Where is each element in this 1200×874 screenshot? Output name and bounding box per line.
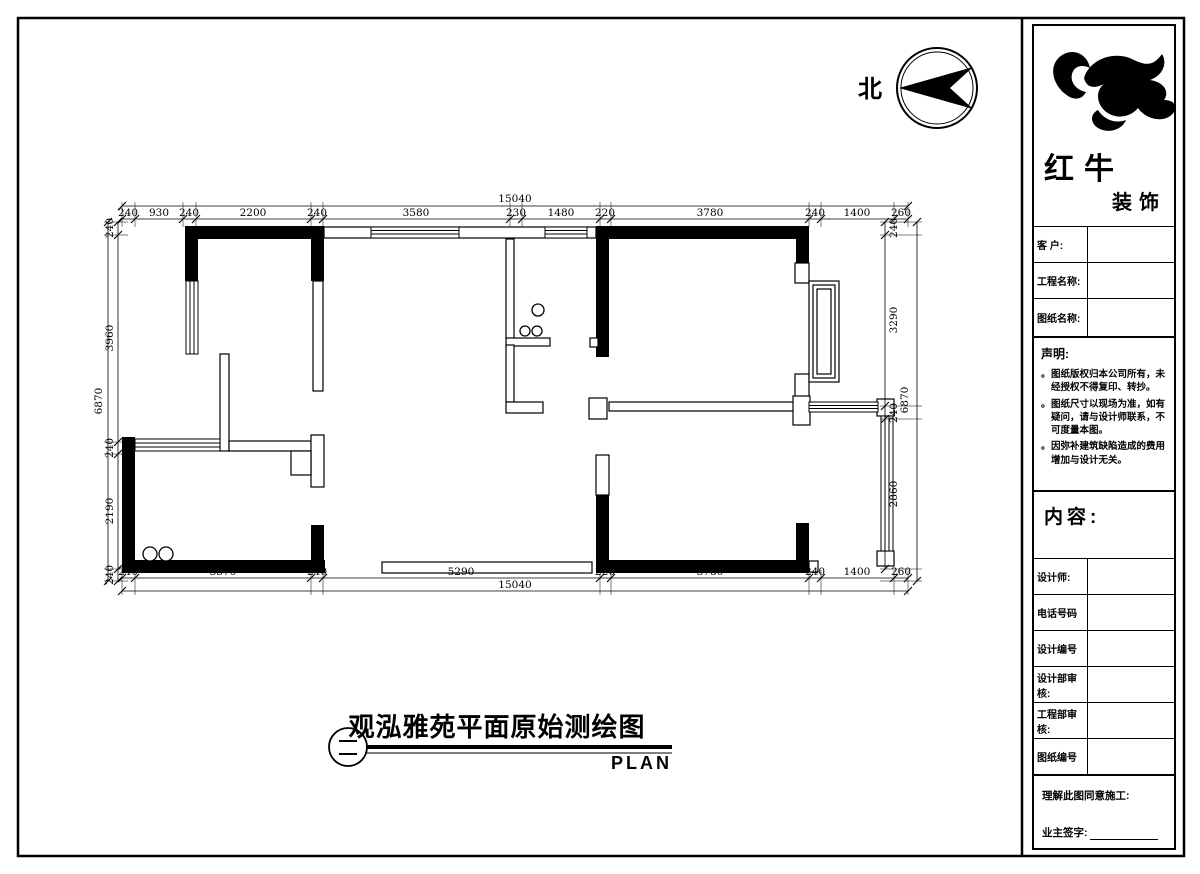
drawing-title: 观泓雅苑平面原始测绘图 PLAN <box>329 712 672 773</box>
dim-label: 240 <box>888 403 900 423</box>
dim-label: 3960 <box>104 325 116 352</box>
field-phone: 电话号码 <box>1034 594 1174 630</box>
sheet-no-label: 图纸编号 <box>1034 739 1088 774</box>
dim-label: 240 <box>104 438 116 458</box>
field-designer: 设计师: <box>1034 558 1174 594</box>
field-design-no: 设计编号 <box>1034 630 1174 666</box>
sheet-no-value[interactable] <box>1088 739 1174 774</box>
dimension-labels: 15040 240 930 240 2200 240 3580 230 1480… <box>93 193 911 591</box>
dim-label: 2200 <box>240 207 267 219</box>
bay-window <box>809 281 839 382</box>
sheet-name-label: 图纸名称: <box>1034 299 1088 336</box>
drawing-title-text: 观泓雅苑平面原始测绘图 <box>348 712 645 742</box>
sheet-name-value[interactable] <box>1088 299 1174 336</box>
dim-label: 5290 <box>448 566 475 578</box>
agreement-label: 理解此图同意施工: <box>1042 788 1168 803</box>
statement-item: 。 图纸版权归本公司所有，未经授权不得复印、转抄。 <box>1041 368 1169 395</box>
dim-label: 240 <box>307 207 327 219</box>
dim-label: 260 <box>891 566 911 578</box>
owner-signature-line[interactable] <box>1090 827 1158 840</box>
design-no-label: 设计编号 <box>1034 631 1088 666</box>
dim-label: 3580 <box>403 207 430 219</box>
bullet-icon: 。 <box>1041 398 1051 438</box>
content-section: 内容: <box>1034 490 1174 558</box>
dim-label: 220 <box>595 207 615 219</box>
statement-text: 因弥补建筑缺陷造成的费用增加与设计无关。 <box>1051 440 1169 467</box>
field-design-review: 设计部审核: <box>1034 666 1174 702</box>
content-label: 内容: <box>1044 507 1100 528</box>
phone-value[interactable] <box>1088 595 1174 630</box>
field-project: 工程名称: <box>1034 262 1174 298</box>
statement-text: 图纸版权归本公司所有，未经授权不得复印、转抄。 <box>1051 368 1169 395</box>
designer-value[interactable] <box>1088 559 1174 594</box>
dim-label: 1480 <box>548 207 575 219</box>
floor-plan-svg: 北 <box>0 0 1200 874</box>
field-sheet-no: 图纸编号 <box>1034 738 1174 774</box>
field-customer: 客 户: <box>1034 226 1174 262</box>
dim-total-right: 6870 <box>899 387 911 414</box>
bullet-icon: 。 <box>1041 368 1051 395</box>
company-subname: 装饰 <box>1112 186 1166 215</box>
dim-label: 240 <box>118 207 138 219</box>
statement-item: 。 图纸尺寸以现场为准，如有疑问，请与设计师联系，不可度量本图。 <box>1041 398 1169 438</box>
dim-label: 220 <box>595 566 615 578</box>
dim-label: 240 <box>104 565 116 585</box>
dim-label: 1400 <box>844 566 871 578</box>
drawing-sheet: 北 <box>0 0 1200 874</box>
north-label: 北 <box>858 76 882 103</box>
dim-label: 2860 <box>888 481 900 508</box>
red-bull-logo-icon <box>1053 52 1175 131</box>
title-block: 红牛 装饰 客 户: 工程名称: 图纸名称: 声明: 。 图纸版权归本公司所有，… <box>1032 24 1176 850</box>
owner-sign-label: 业主签字: <box>1042 825 1088 840</box>
customer-label: 客 户: <box>1034 227 1088 262</box>
dim-label: 2190 <box>104 498 116 525</box>
project-value[interactable] <box>1088 263 1174 298</box>
field-engineering-review: 工程部审核: <box>1034 702 1174 738</box>
dim-label: 3780 <box>697 566 724 578</box>
design-no-value[interactable] <box>1088 631 1174 666</box>
designer-label: 设计师: <box>1034 559 1088 594</box>
statement-text: 图纸尺寸以现场为准，如有疑问，请与设计师联系，不可度量本图。 <box>1051 398 1169 438</box>
dim-label: 1400 <box>844 207 871 219</box>
company-logo: 红牛 装饰 <box>1034 26 1174 226</box>
statement-item: 。 因弥补建筑缺陷造成的费用增加与设计无关。 <box>1041 440 1169 467</box>
field-sheet-name: 图纸名称: <box>1034 298 1174 336</box>
signature-section: 理解此图同意施工: 业主签字: <box>1034 774 1174 848</box>
statement-section: 声明: 。 图纸版权归本公司所有，未经授权不得复印、转抄。 。 图纸尺寸以现场为… <box>1034 336 1174 490</box>
dim-total-left: 6870 <box>93 388 105 415</box>
dim-total-top: 15040 <box>498 193 531 205</box>
north-indicator: 北 <box>858 48 977 128</box>
dim-label: 240 <box>888 218 900 238</box>
dim-label: 3780 <box>697 207 724 219</box>
fixtures <box>143 304 544 561</box>
statement-heading: 声明: <box>1041 345 1169 362</box>
north-arrow-icon <box>899 67 973 109</box>
dim-label: 240 <box>179 207 199 219</box>
dim-label: 930 <box>149 207 169 219</box>
dim-label: 240 <box>307 566 327 578</box>
design-review-value[interactable] <box>1088 667 1174 702</box>
dim-total-bottom: 15040 <box>498 579 531 591</box>
engineering-review-label: 工程部审核: <box>1034 703 1088 738</box>
dim-label: 260 <box>891 207 911 219</box>
dim-label: 240 <box>118 566 138 578</box>
plan-label: PLAN <box>611 753 672 773</box>
dim-label: 240 <box>805 566 825 578</box>
dim-label: 240 <box>104 218 116 238</box>
design-review-label: 设计部审核: <box>1034 667 1088 702</box>
customer-value[interactable] <box>1088 227 1174 262</box>
dim-label: 230 <box>506 207 526 219</box>
dim-label: 240 <box>805 207 825 219</box>
company-name: 红牛 <box>1044 144 1124 188</box>
dim-label: 3370 <box>210 566 237 578</box>
dim-label: 3290 <box>888 307 900 334</box>
project-label: 工程名称: <box>1034 263 1088 298</box>
bullet-icon: 。 <box>1041 440 1051 467</box>
engineering-review-value[interactable] <box>1088 703 1174 738</box>
phone-label: 电话号码 <box>1034 595 1088 630</box>
